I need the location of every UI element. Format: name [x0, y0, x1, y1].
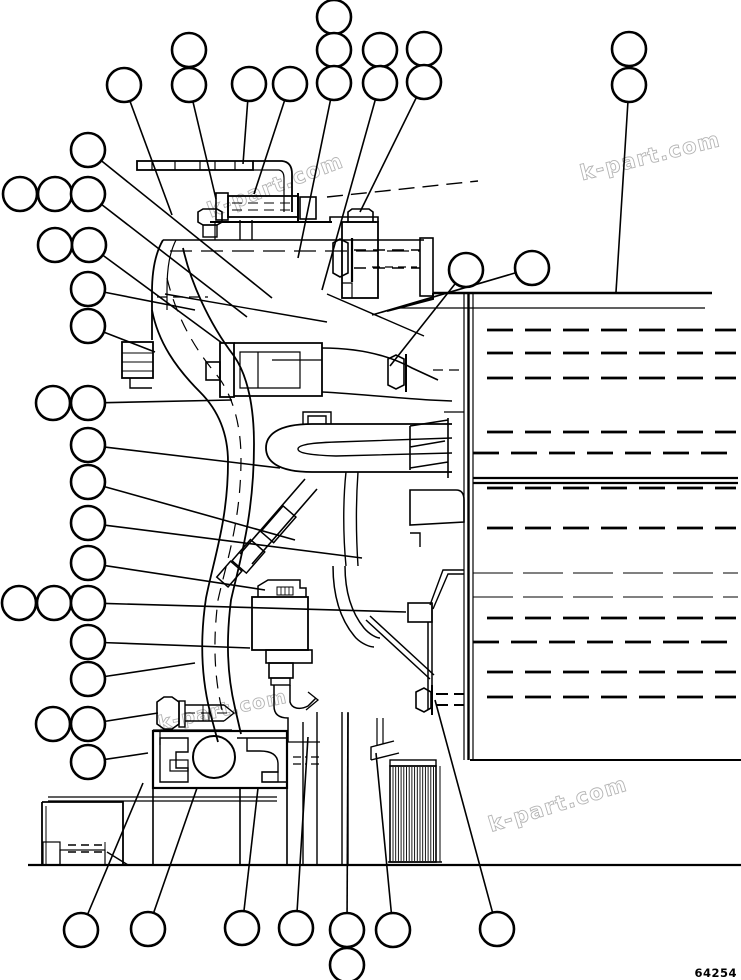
strainer-body: [390, 766, 436, 862]
diagram-canvas: k-part.comk-part.comk-part.comk-part.com: [0, 0, 741, 980]
callout-balloon[interactable]: [449, 253, 483, 287]
callout-balloon[interactable]: [612, 32, 646, 66]
parts-drawing: [28, 161, 741, 865]
leader-line: [105, 292, 195, 310]
callout-balloon[interactable]: [71, 177, 105, 211]
callout-balloon[interactable]: [71, 506, 105, 540]
watermark-text: k-part.com: [486, 772, 631, 837]
callout-balloon[interactable]: [36, 707, 70, 741]
callout-balloon[interactable]: [107, 68, 141, 102]
callout-balloon[interactable]: [515, 251, 549, 285]
leader-line: [105, 525, 362, 558]
leader-line: [105, 713, 158, 721]
callout-balloon[interactable]: [363, 33, 397, 67]
callout-balloon[interactable]: [172, 68, 206, 102]
callout-balloon[interactable]: [71, 745, 105, 779]
callout-balloon[interactable]: [3, 177, 37, 211]
callout-balloon[interactable]: [71, 428, 105, 462]
watermark-text: k-part.com: [578, 127, 724, 185]
leader-line: [105, 603, 406, 612]
callout-balloon[interactable]: [317, 66, 351, 100]
leader-line: [347, 713, 348, 913]
parts-diagram-page: k-part.comk-part.comk-part.comk-part.com: [0, 0, 741, 980]
leader-line: [105, 663, 195, 676]
callout-balloon[interactable]: [71, 386, 105, 420]
leader-line: [154, 788, 197, 913]
callout-balloon[interactable]: [172, 33, 206, 67]
leader-line: [376, 753, 391, 913]
callout-balloon[interactable]: [71, 546, 105, 580]
callout-balloon[interactable]: [71, 662, 105, 696]
leader-line: [105, 753, 148, 759]
callout-balloon[interactable]: [131, 912, 165, 946]
watermark-text: k-part.com: [204, 148, 347, 222]
leader-line: [105, 400, 232, 403]
callout-balloon[interactable]: [317, 0, 351, 34]
callout-balloon[interactable]: [363, 66, 397, 100]
callout-balloon[interactable]: [71, 707, 105, 741]
callout-balloon[interactable]: [612, 68, 646, 102]
callout-balloon[interactable]: [376, 913, 410, 947]
callout-balloon[interactable]: [71, 465, 105, 499]
leader-line: [193, 102, 216, 199]
leader-line: [104, 487, 295, 540]
callout-balloon[interactable]: [64, 913, 98, 947]
callout-balloon[interactable]: [407, 65, 441, 99]
callout-balloon[interactable]: [71, 586, 105, 620]
radiator-core: [387, 293, 741, 760]
leader-line: [616, 102, 628, 292]
top-assembly: [137, 161, 478, 340]
bearing-bore: [193, 736, 235, 778]
figure-number: 64254: [694, 966, 737, 980]
callout-balloon[interactable]: [71, 625, 105, 659]
callout-layer: [2, 0, 646, 980]
callout-balloon[interactable]: [72, 228, 106, 262]
callout-balloon[interactable]: [37, 586, 71, 620]
callout-balloon[interactable]: [279, 911, 313, 945]
callout-balloon[interactable]: [2, 586, 36, 620]
striped-strainer: [388, 760, 442, 862]
callout-balloon[interactable]: [38, 177, 72, 211]
leader-line: [101, 161, 272, 298]
callout-balloon[interactable]: [317, 33, 351, 67]
callout-balloon[interactable]: [232, 67, 266, 101]
callout-balloon[interactable]: [36, 386, 70, 420]
leader-line: [244, 788, 258, 911]
callout-balloon[interactable]: [273, 67, 307, 101]
callout-balloon[interactable]: [225, 911, 259, 945]
u-pipe-hose: [266, 412, 452, 566]
callout-balloon[interactable]: [38, 228, 72, 262]
callout-balloon[interactable]: [330, 913, 364, 947]
leader-line: [243, 101, 248, 164]
leader-line: [360, 97, 416, 212]
callout-balloon[interactable]: [407, 32, 441, 66]
radiator-brackets: [366, 418, 464, 715]
callout-balloon[interactable]: [71, 309, 105, 343]
callout-balloon[interactable]: [480, 912, 514, 946]
callout-balloon[interactable]: [71, 272, 105, 306]
leader-line: [103, 255, 222, 343]
callout-balloon[interactable]: [330, 948, 364, 980]
watermark-text: k-part.com: [156, 686, 289, 735]
leader-line: [130, 101, 172, 215]
callout-balloon[interactable]: [71, 133, 105, 167]
filter-canister: [252, 566, 380, 742]
